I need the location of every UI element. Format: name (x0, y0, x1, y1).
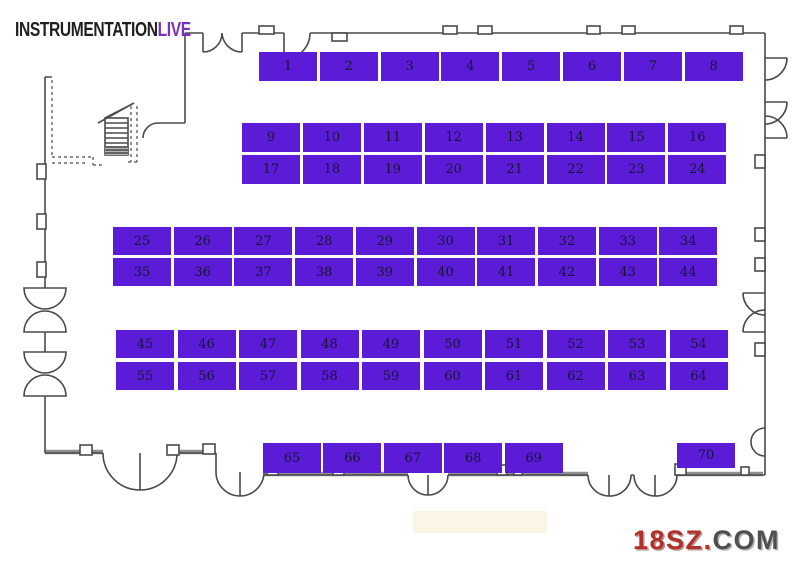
booth-44[interactable]: 44 (659, 258, 717, 286)
booth-29[interactable]: 29 (356, 227, 414, 255)
booth-51[interactable]: 51 (485, 330, 543, 358)
booth-65[interactable]: 65 (263, 443, 321, 473)
booth-63[interactable]: 63 (608, 362, 666, 390)
booth-16[interactable]: 16 (668, 123, 726, 152)
booth-68[interactable]: 68 (444, 443, 502, 473)
booth-13[interactable]: 13 (486, 123, 544, 152)
booth-42[interactable]: 42 (538, 258, 596, 286)
watermark-text-18sz: 18SZ. (633, 525, 713, 555)
booth-21[interactable]: 21 (486, 155, 544, 184)
booth-49[interactable]: 49 (362, 330, 420, 358)
booth-26[interactable]: 26 (174, 227, 232, 255)
booth-27[interactable]: 27 (234, 227, 292, 255)
booth-12[interactable]: 12 (425, 123, 483, 152)
booth-22[interactable]: 22 (547, 155, 605, 184)
booth-17[interactable]: 17 (242, 155, 300, 184)
booth-48[interactable]: 48 (301, 330, 359, 358)
booth-54[interactable]: 54 (670, 330, 728, 358)
booth-2[interactable]: 2 (320, 52, 378, 81)
booth-35[interactable]: 35 (113, 258, 171, 286)
booth-9[interactable]: 9 (242, 123, 300, 152)
booth-62[interactable]: 62 (547, 362, 605, 390)
booth-56[interactable]: 56 (178, 362, 236, 390)
booth-31[interactable]: 31 (477, 227, 535, 255)
booth-25[interactable]: 25 (113, 227, 171, 255)
booth-55[interactable]: 55 (116, 362, 174, 390)
booth-69[interactable]: 69 (505, 443, 563, 473)
booth-3[interactable]: 3 (381, 52, 439, 81)
booth-20[interactable]: 20 (425, 155, 483, 184)
floor-plan-page: INSTRUMENTATIONLIVE (0, 0, 800, 565)
booth-23[interactable]: 23 (607, 155, 665, 184)
booth-50[interactable]: 50 (424, 330, 482, 358)
booth-67[interactable]: 67 (384, 443, 442, 473)
booth-6[interactable]: 6 (563, 52, 621, 81)
booth-7[interactable]: 7 (624, 52, 682, 81)
booth-8[interactable]: 8 (685, 52, 743, 81)
booth-32[interactable]: 32 (538, 227, 596, 255)
booth-46[interactable]: 46 (178, 330, 236, 358)
booth-4[interactable]: 4 (441, 52, 499, 81)
booth-61[interactable]: 61 (485, 362, 543, 390)
booth-24[interactable]: 24 (668, 155, 726, 184)
booth-18[interactable]: 18 (303, 155, 361, 184)
booth-14[interactable]: 14 (547, 123, 605, 152)
booth-53[interactable]: 53 (608, 330, 666, 358)
booth-43[interactable]: 43 (599, 258, 657, 286)
booth-70[interactable]: 70 (677, 443, 735, 468)
booth-41[interactable]: 41 (477, 258, 535, 286)
booth-19[interactable]: 19 (364, 155, 422, 184)
booth-34[interactable]: 34 (659, 227, 717, 255)
booth-28[interactable]: 28 (295, 227, 353, 255)
watermark: 18SZ.COM (633, 525, 780, 556)
logo: INSTRUMENTATIONLIVE (15, 19, 191, 42)
booth-37[interactable]: 37 (234, 258, 292, 286)
booth-58[interactable]: 58 (301, 362, 359, 390)
logo-text-instrumentation: INSTRUMENTATION (15, 19, 158, 41)
booths-layer: 1234567891011121314151617181920212223242… (0, 0, 800, 565)
booth-52[interactable]: 52 (547, 330, 605, 358)
booth-57[interactable]: 57 (239, 362, 297, 390)
booth-60[interactable]: 60 (424, 362, 482, 390)
booth-47[interactable]: 47 (239, 330, 297, 358)
booth-38[interactable]: 38 (295, 258, 353, 286)
booth-39[interactable]: 39 (356, 258, 414, 286)
logo-text-live: LIVE (158, 19, 191, 41)
watermark-text-com: COM (713, 525, 781, 555)
booth-30[interactable]: 30 (417, 227, 475, 255)
booth-10[interactable]: 10 (303, 123, 361, 152)
booth-64[interactable]: 64 (670, 362, 728, 390)
booth-5[interactable]: 5 (502, 52, 560, 81)
booth-66[interactable]: 66 (323, 443, 381, 473)
booth-36[interactable]: 36 (174, 258, 232, 286)
booth-15[interactable]: 15 (607, 123, 665, 152)
booth-1[interactable]: 1 (259, 52, 317, 81)
booth-40[interactable]: 40 (417, 258, 475, 286)
booth-33[interactable]: 33 (599, 227, 657, 255)
booth-45[interactable]: 45 (116, 330, 174, 358)
booth-11[interactable]: 11 (364, 123, 422, 152)
booth-59[interactable]: 59 (362, 362, 420, 390)
